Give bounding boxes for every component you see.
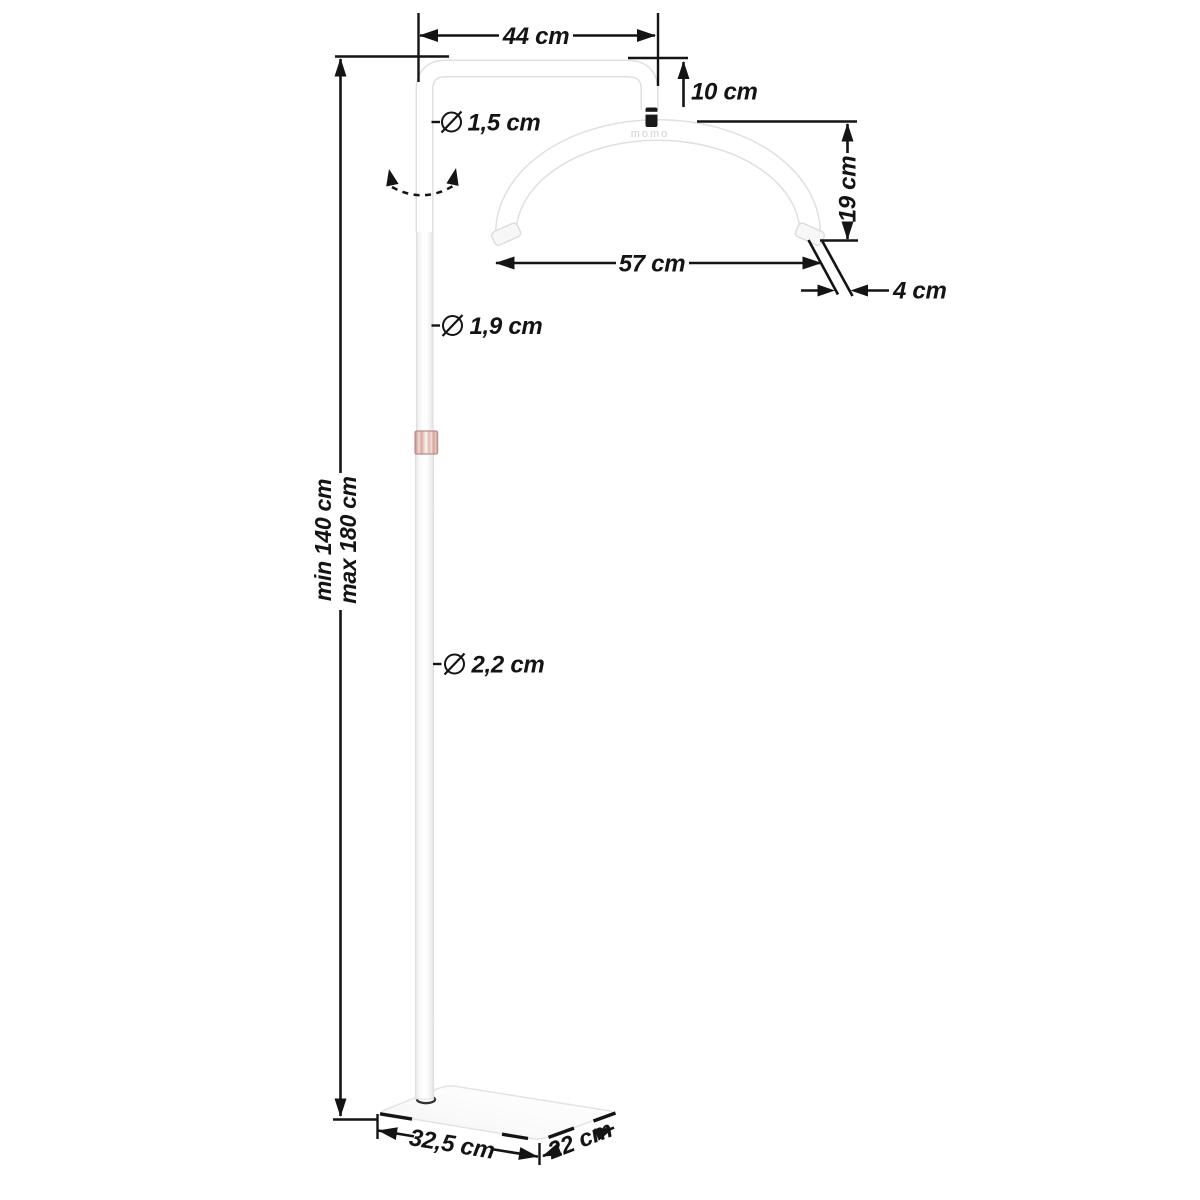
lamp-dimension-diagram: momo min 140 cm max 180 cm 44 cm <box>0 0 1200 1200</box>
arm-body <box>425 69 650 233</box>
arm-width-label: 44 cm <box>502 23 570 50</box>
arrowhead-icon <box>678 61 690 79</box>
height-min-label: min 140 cm <box>310 479 336 601</box>
dim-arc-width: 57 cm <box>495 251 822 278</box>
arc-body <box>506 130 810 233</box>
arrowhead-icon <box>335 1099 347 1118</box>
arm-outline <box>425 69 650 233</box>
height-adjustment-collar <box>415 431 438 454</box>
arc-width-label: 57 cm <box>619 251 686 278</box>
rotation-arrowhead-right-icon <box>446 168 458 186</box>
floor-lamp-illustration: momo <box>380 69 826 1139</box>
lamp-pole <box>415 222 438 1100</box>
arrowhead-icon <box>335 58 347 77</box>
arrowhead-icon <box>378 1127 398 1140</box>
brand-logo: momo <box>631 128 670 140</box>
lamp-arc-head: momo <box>490 108 825 247</box>
dim-pole-top-diameter: 1,5 cm <box>432 110 541 137</box>
arrowhead-icon <box>842 222 854 241</box>
arc-height-label: 19 cm <box>835 156 862 223</box>
height-max-label: max 180 cm <box>335 476 361 603</box>
arrowhead-icon <box>842 123 854 142</box>
arrowhead-icon <box>495 257 515 270</box>
dim-pole-bottom-diameter: 2,2 cm <box>433 652 544 679</box>
head-drop-label: 10 cm <box>691 79 758 106</box>
diameter-icon <box>443 315 463 336</box>
arc-end-cap-left <box>490 222 521 247</box>
arrowhead-icon <box>637 29 656 42</box>
diagram-canvas: momo min 140 cm max 180 cm 44 cm <box>0 0 1200 1200</box>
arm-head-connector <box>646 108 658 128</box>
diameter-icon <box>445 654 465 675</box>
arrowhead-icon <box>518 1147 538 1160</box>
pole-top-diameter-label: 1,5 cm <box>468 110 541 137</box>
tube-thickness-label: 4 cm <box>892 278 947 305</box>
pole-mid-diameter-label: 1,9 cm <box>470 313 543 340</box>
pole-bottom-diameter-label: 2,2 cm <box>471 652 545 679</box>
arc-outline <box>506 130 810 233</box>
pole-bottom-section <box>415 452 433 1099</box>
diameter-icon <box>442 112 462 133</box>
dim-pole-mid-diameter: 1,9 cm <box>432 313 543 340</box>
dim-tube-thickness: 4 cm <box>801 240 947 305</box>
lamp-arm <box>425 69 650 233</box>
pole-middle-section <box>416 222 433 434</box>
arrowhead-icon <box>419 29 438 42</box>
rotation-arrowhead-left-icon <box>386 169 398 187</box>
